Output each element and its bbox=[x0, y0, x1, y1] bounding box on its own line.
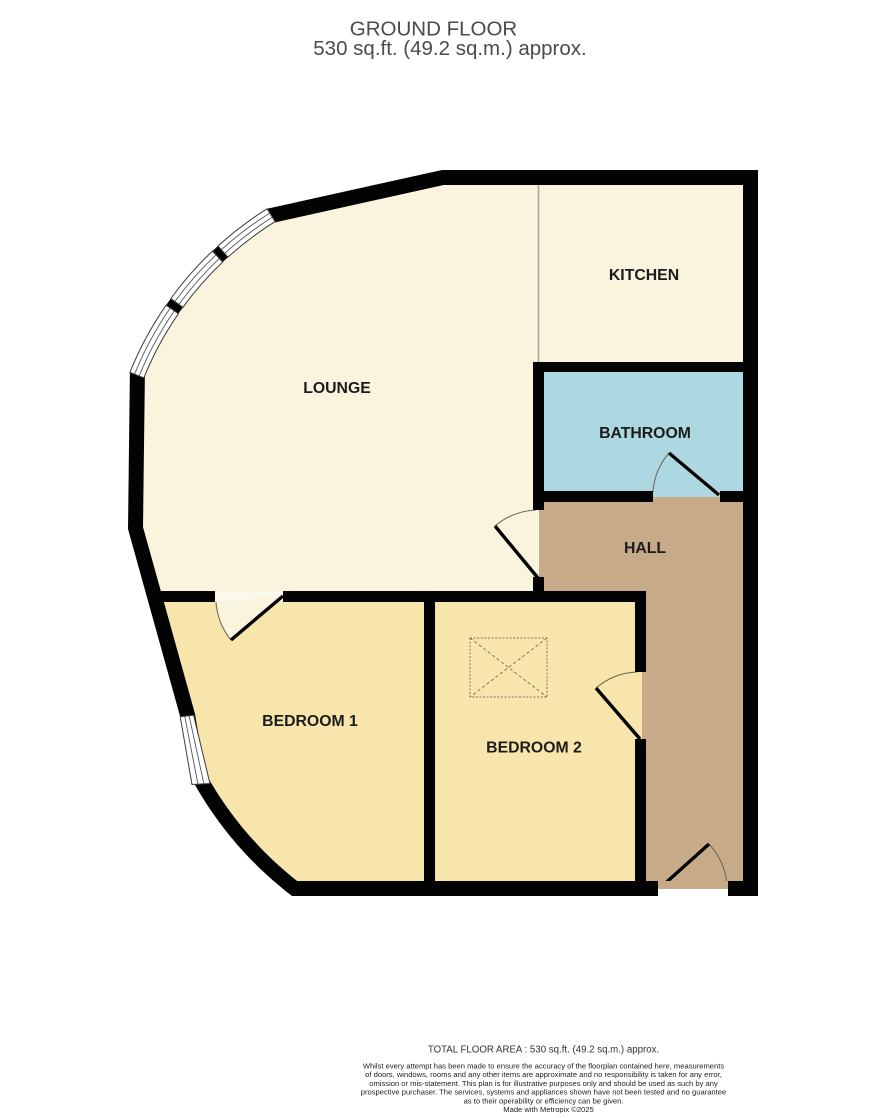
svg-text:as to their operability or eff: as to their operability or efficiency ca… bbox=[464, 1096, 624, 1105]
svg-text:TOTAL FLOOR AREA : 530 sq.ft.: TOTAL FLOOR AREA : 530 sq.ft. (49.2 sq.m… bbox=[428, 1045, 659, 1056]
svg-text:KITCHEN: KITCHEN bbox=[609, 267, 679, 284]
svg-text:530 sq.ft. (49.2 sq.m.) approx: 530 sq.ft. (49.2 sq.m.) approx. bbox=[313, 37, 586, 60]
svg-text:Made with Metropix ©2025: Made with Metropix ©2025 bbox=[503, 1105, 593, 1113]
svg-text:prospective purchaser. The ser: prospective purchaser. The services, sys… bbox=[361, 1088, 726, 1097]
svg-text:LOUNGE: LOUNGE bbox=[303, 380, 371, 397]
svg-text:BATHROOM: BATHROOM bbox=[599, 425, 691, 442]
svg-text:BEDROOM 1: BEDROOM 1 bbox=[262, 713, 358, 730]
svg-text:omission or mis-statement. Thi: omission or mis-statement. This plan is … bbox=[369, 1079, 718, 1088]
svg-text:Whilst every attempt has been: Whilst every attempt has been made to en… bbox=[363, 1062, 725, 1071]
svg-text:of doors, windows, rooms and a: of doors, windows, rooms and any other i… bbox=[365, 1070, 722, 1079]
svg-text:BEDROOM 2: BEDROOM 2 bbox=[486, 740, 582, 757]
svg-text:HALL: HALL bbox=[624, 540, 666, 557]
